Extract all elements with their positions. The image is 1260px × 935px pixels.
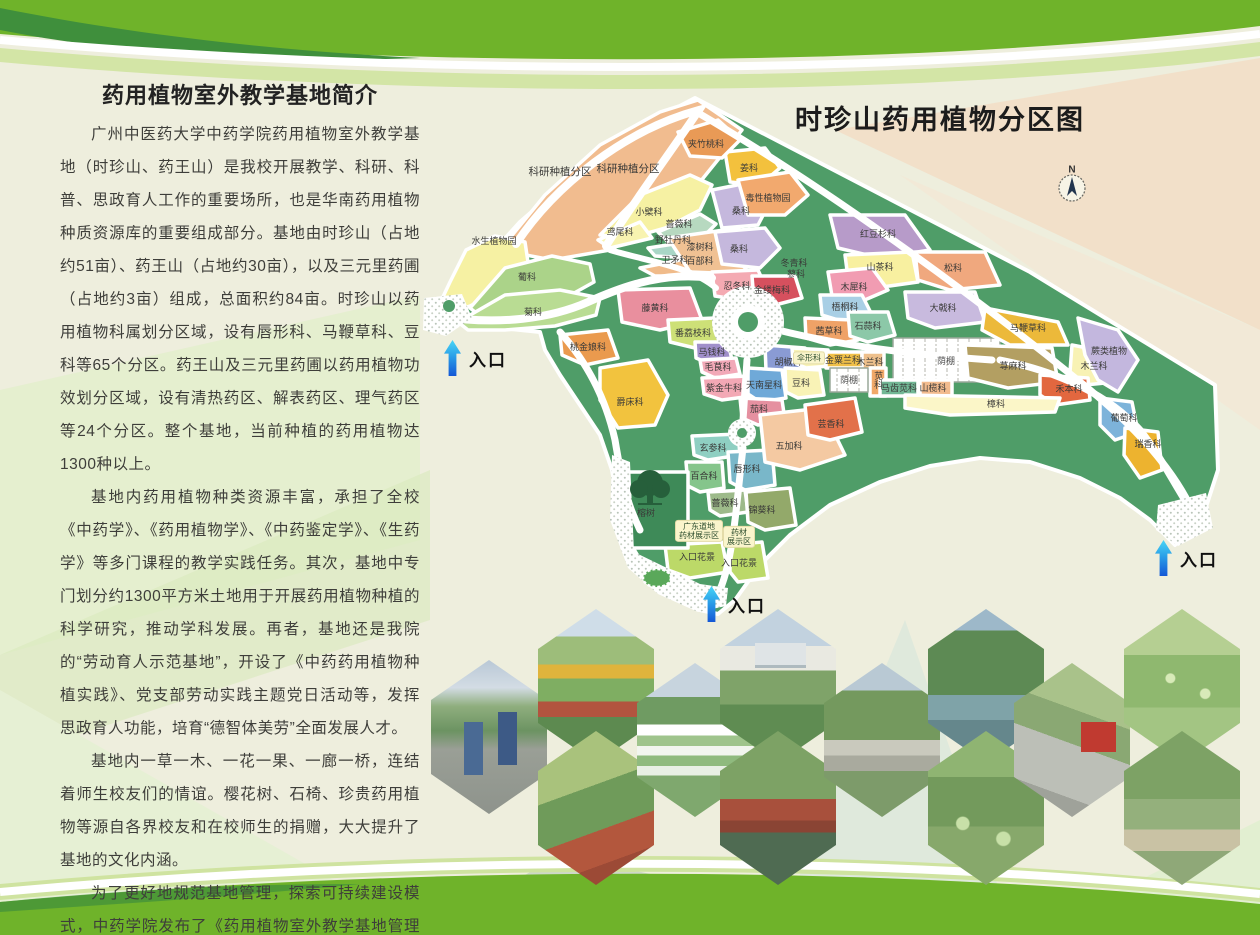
map-region-label-chunxing: 唇形科 — [733, 464, 760, 474]
map-region-label-qiangwei-s: 蔷薇科 — [711, 498, 738, 508]
intro-title: 药用植物室外教学基地简介 — [60, 78, 420, 110]
brochure-page: { "left_panel": { "title": "药用植物室外教学基地简介… — [0, 0, 1260, 935]
entrance-label: 入口 — [728, 592, 766, 617]
map-region-label-yuanwei: 鸢尾科 — [606, 227, 633, 237]
compass-icon — [1059, 175, 1085, 201]
map-region-label-juechuang: 爵床科 — [616, 397, 643, 407]
shrub-icon — [643, 569, 671, 587]
map-region-label-jinlvmei: 金缕梅科 — [754, 285, 790, 295]
map-region-label-qiancao: 茜草科 — [815, 326, 842, 336]
map-region-label-putao: 葡萄科 — [1110, 413, 1137, 423]
map-region-label-shisuan: 石蒜科 — [854, 321, 881, 331]
intro-panel: 药用植物室外教学基地简介 广州中医药大学中药学院药用植物室外教学基地（时珍山、药… — [60, 78, 420, 935]
entrance-east: 入口 — [1155, 540, 1218, 576]
map-region-label-gddd: 广东道地药材展示区 — [676, 521, 722, 541]
map-region-label-keyan-a: 科研种植分区 — [529, 166, 592, 178]
map-region-label-ruixiang: 瑞香科 — [1134, 439, 1161, 449]
map-region-label-fanlizhi: 番荔枝科 — [675, 328, 711, 338]
entrance-south: 入口 — [703, 586, 766, 622]
map-title: 时珍山药用植物分区图 — [795, 98, 1085, 137]
map-region-label-weimao: 卫矛科 — [661, 255, 688, 265]
map-region-label-shancha: 山茶科 — [866, 262, 893, 272]
map-region-label-taojinniang: 桃金娘科 — [570, 342, 606, 352]
map-region-label-liao: 蓼科 — [787, 269, 805, 279]
map-region-label-rkhj-a: 入口花景 — [679, 552, 715, 562]
map-region-label-duxing: 毒性植物园 — [745, 193, 790, 203]
map-region-label-heben: 禾本科 — [1055, 384, 1082, 394]
map-region-label-shanlan: 山榄科 — [919, 383, 946, 393]
map-region-label-sanxing: 伞形科 — [794, 352, 824, 363]
map-region-label-baibu: 百部科 — [686, 256, 713, 266]
map-region-label-wutong: 梧桐科 — [831, 302, 858, 312]
map-region-label-sang-b: 桑科 — [730, 244, 748, 254]
map-region-zhang — [905, 395, 1060, 415]
map-region-label-wujia: 五加科 — [775, 441, 802, 451]
map-region-label-muxi: 木犀科 — [840, 282, 867, 292]
map-region-label-puke: 葡科 — [518, 272, 536, 282]
map-region-label-peng-b: 荫棚 — [840, 375, 858, 385]
map-region-label-sang-a: 桑科 — [732, 206, 750, 216]
map-region-label-jiazhutao: 夹竹桃科 — [688, 139, 724, 149]
compass-north-label: N — [1068, 165, 1075, 176]
map-region-label-maogen: 毛茛科 — [704, 362, 731, 372]
map-region-label-rongshu: 榕树 — [637, 508, 655, 518]
map-region-label-machixian: 马齿苋科 — [881, 383, 917, 393]
map-region-label-shuisheng: 水生植物园 — [471, 236, 516, 246]
map-region-label-yczs: 药材展示区 — [724, 527, 754, 547]
map-region-label-peng-a: 荫棚 — [937, 356, 955, 366]
entrance-west: 入口 — [444, 340, 507, 376]
map-region-label-zijinniu: 紫金牛科 — [706, 383, 742, 393]
map-region-label-juke: 菊科 — [524, 307, 542, 317]
map-region-label-tiannanxing: 天南星科 — [746, 380, 782, 390]
entrance-arrow-icon — [703, 586, 720, 622]
map-region-label-xiaobo: 小檗科 — [635, 207, 662, 217]
map-region-label-mulan-s: 木兰科 — [856, 357, 883, 367]
entrance-arrow-icon — [1155, 540, 1172, 576]
map-region-label-dou: 豆科 — [792, 378, 810, 388]
entrance-arrow-icon — [444, 340, 461, 376]
map-region-label-baihe: 百合科 — [690, 471, 717, 481]
map-region-label-xuanshen: 玄参科 — [699, 443, 726, 453]
map-region-label-qiangwei-n: 蔷薇科 — [665, 219, 692, 229]
map-region-label-keyan-b: 科研种植分区 — [597, 163, 660, 175]
map-region-label-dongqing: 冬青科 — [780, 258, 807, 268]
intro-paragraph-1: 广州中医药大学中药学院药用植物室外教学基地（时珍山、药王山）是我校开展教学、科研… — [60, 118, 420, 481]
map-region-label-yunxiang: 芸香科 — [817, 419, 844, 429]
map-region-label-jinkui: 锦葵科 — [748, 505, 775, 515]
intro-paragraph-4: 为了更好地规范基地管理，探索可持续建设模式，中药学院发布了《药用植物室外教学基地… — [60, 877, 420, 935]
entrance-label: 入口 — [1180, 546, 1218, 571]
map-region-label-song: 松科 — [944, 263, 962, 273]
map-region-label-mabiancao: 马鞭草科 — [1010, 323, 1046, 333]
map-region-label-juelei: 蕨类植物 — [1091, 346, 1127, 356]
entrance-label: 入口 — [469, 346, 507, 371]
map-region-label-hongdoushan: 红豆杉科 — [860, 229, 896, 239]
map-region-label-daji: 大戟科 — [929, 303, 956, 313]
map-region-label-tenghuang: 藤黄科 — [641, 303, 668, 313]
map-region-label-jiang: 姜科 — [740, 163, 758, 173]
map-region-label-maqian: 马钱科 — [698, 347, 725, 357]
intro-paragraph-3: 基地内一草一木、一花一果、一廊一桥，连结着师生校友们的情谊。樱花树、石椅、珍贵药… — [60, 745, 420, 877]
map-region-label-rkhj-b: 入口花景 — [721, 558, 757, 568]
map-region-label-mulan-b: 木兰科 — [1080, 361, 1107, 371]
map-region-label-qianma: 荨麻科 — [999, 361, 1026, 371]
map-region-label-rendong: 忍冬科 — [723, 281, 750, 291]
map-region-label-qie: 茄科 — [750, 404, 768, 414]
map-region-label-qishu: 漆树科 — [686, 242, 713, 252]
intro-paragraph-2: 基地内药用植物种类资源丰富，承担了全校《中药学》、《药用植物学》、《中药鉴定学》… — [60, 481, 420, 745]
map-region-label-zhang: 樟科 — [987, 399, 1005, 409]
